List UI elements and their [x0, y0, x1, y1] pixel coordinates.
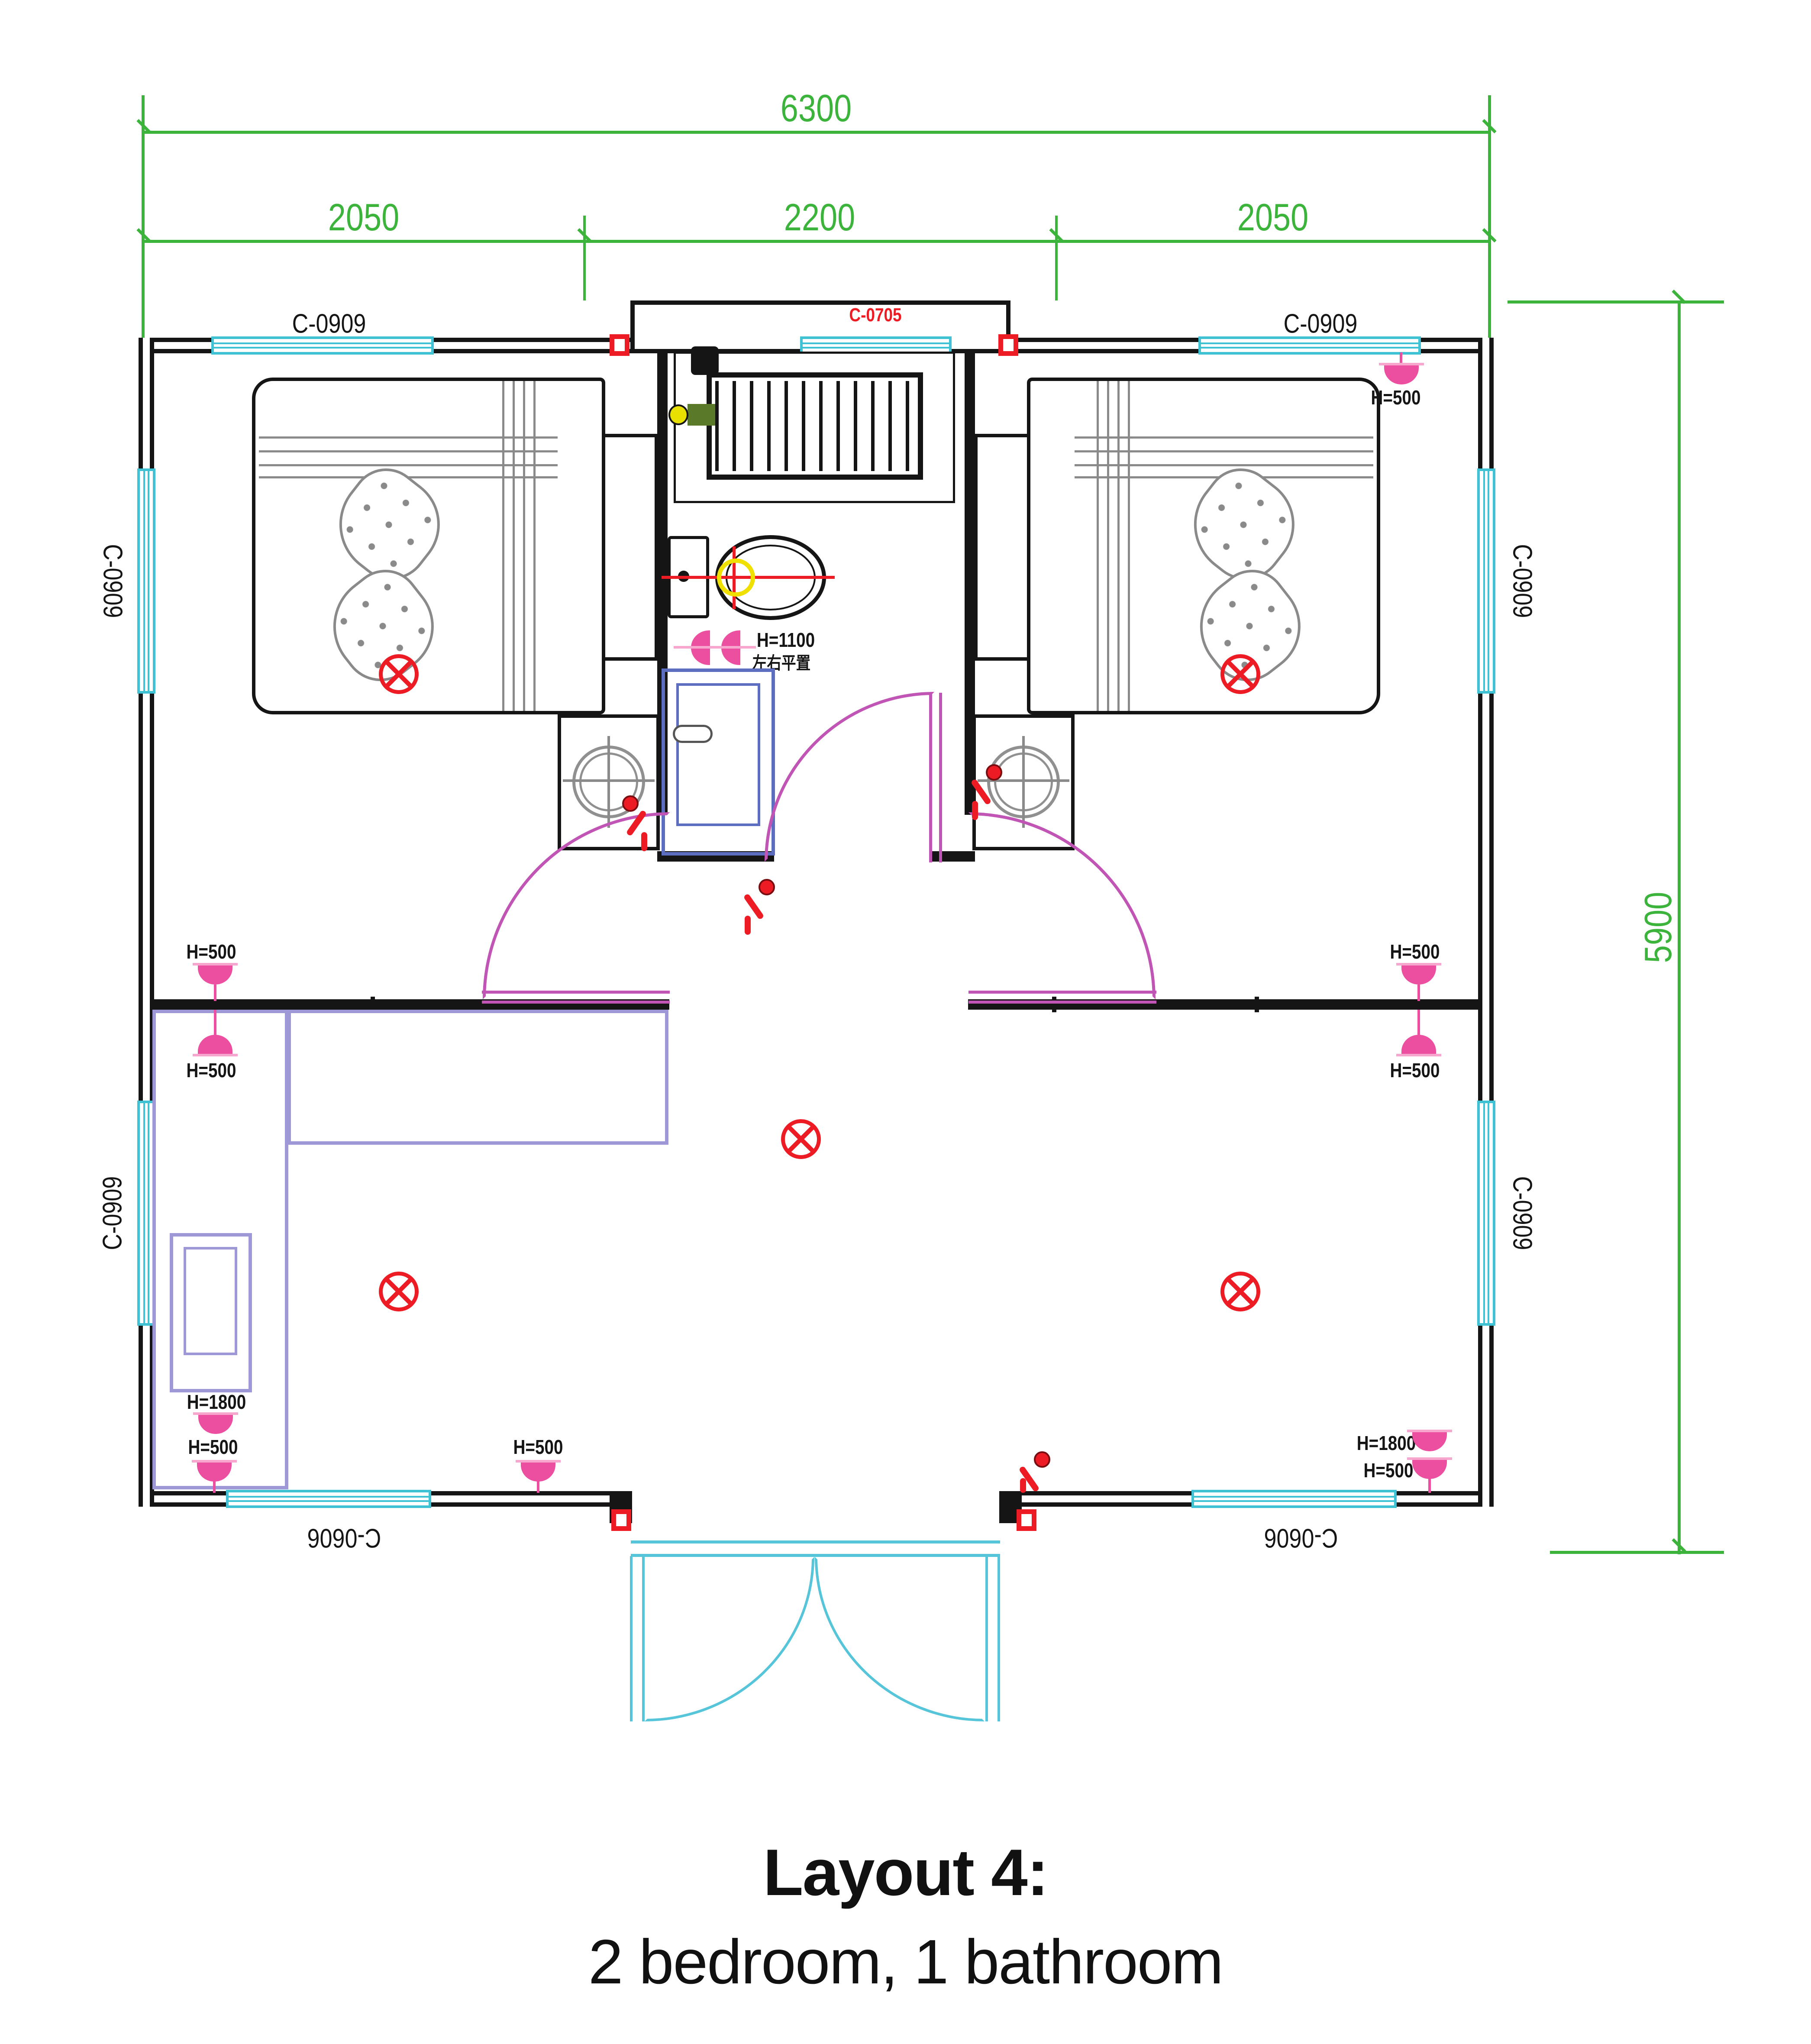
wall-lamp-stem	[1417, 985, 1420, 1001]
toilet-target-ring	[717, 559, 755, 597]
entry-door-leaf-left	[630, 1556, 645, 1721]
lamp-height-label: H=500	[187, 940, 236, 963]
shower-grate	[707, 372, 923, 480]
window-label-left-lower: C-0909	[97, 1176, 128, 1250]
dim-ext-mid2	[1055, 216, 1058, 300]
wall-lamp-bar	[674, 646, 756, 649]
window-left-upper	[137, 468, 155, 694]
ceiling-light-icon	[1220, 1272, 1260, 1311]
entry-door-arc-right	[815, 1557, 985, 1721]
wall-lamp-icon	[1384, 365, 1419, 384]
outlet-icon	[998, 334, 1018, 356]
bed-right-cabinet	[974, 434, 1030, 661]
shower-drain-box	[691, 346, 719, 375]
ceiling-light-icon	[379, 654, 419, 694]
switch-arm	[972, 801, 978, 820]
door-arc-bedroom-right	[968, 812, 1156, 999]
wall-lamp-stem	[213, 1481, 216, 1493]
wall-lamp-icon	[1401, 965, 1436, 985]
dim-segment-2: 2200	[784, 195, 855, 239]
bed-right-headboard-line	[1117, 381, 1120, 711]
window-bottom-left	[226, 1490, 431, 1508]
outlet-icon	[611, 1509, 631, 1531]
bed-right-headboard-line	[1128, 381, 1130, 711]
outlet-icon	[610, 334, 629, 356]
ceiling-light-icon	[1220, 654, 1260, 694]
dim-segment-1: 2050	[328, 195, 399, 239]
nightstand-right-cross-v	[1022, 736, 1025, 828]
page-subtitle: 2 bedroom, 1 bathroom	[0, 1926, 1811, 1998]
wall-lamp-bar	[193, 1054, 238, 1056]
dim-overall-height: 5900	[1636, 892, 1680, 963]
wall-lamp-icon	[1412, 1432, 1447, 1451]
vanity-inner	[676, 683, 760, 826]
lamp-height-label: H=500	[187, 1059, 236, 1082]
switch-icon	[986, 764, 1002, 781]
bed-left-headboard-line	[502, 381, 504, 711]
dim-line-total	[143, 131, 1489, 134]
switch-arm	[745, 916, 751, 935]
switch-arm	[641, 832, 647, 851]
window-label-bathroom: C-0705	[849, 304, 901, 326]
wall-lamp-stem	[1428, 1478, 1431, 1493]
ceiling-light-icon	[781, 1119, 821, 1159]
switch-arm	[1020, 1478, 1026, 1493]
bathroom-lamp-height-label: H=1100	[757, 628, 815, 652]
wall-lamp-icon	[198, 965, 232, 985]
window-label-top-left: C-0909	[292, 309, 366, 339]
bed-left-headboard-line	[533, 381, 536, 711]
switch-icon	[1034, 1451, 1050, 1468]
lamp-height-label: H=1800	[187, 1390, 246, 1414]
window-label-right-upper: C-0909	[1507, 544, 1538, 618]
bed-left-headboard-line	[513, 381, 515, 711]
dim-segment-3: 2050	[1237, 195, 1308, 239]
wall-lamp-bar	[1396, 1054, 1441, 1056]
dim-total-width: 6300	[781, 86, 852, 130]
wall-lamp-stem	[214, 1010, 216, 1035]
ceiling-light-icon	[379, 1272, 419, 1311]
wall-lamp-stem	[214, 985, 216, 1001]
dim-line-segments	[143, 240, 1489, 243]
lamp-height-label: H=500	[188, 1435, 238, 1459]
bed-right-headboard-line	[1107, 381, 1109, 711]
lamp-height-label: H=500	[1364, 1459, 1414, 1482]
window-right-lower	[1477, 1101, 1495, 1326]
fridge-inner	[184, 1247, 237, 1355]
entry-door-arc-left	[645, 1557, 814, 1721]
kitchen-counter	[287, 1010, 668, 1145]
dim-ext-top-right	[1508, 300, 1724, 304]
window-label-bottom-right: C-0606	[1264, 1523, 1338, 1553]
vanity-faucet	[673, 725, 713, 743]
wall-lamp-stem	[537, 1481, 539, 1493]
lamp-height-label: H=1800	[1357, 1431, 1416, 1455]
door-leaf-bedroom-right	[968, 991, 1156, 1004]
wall-lamp-stem	[1417, 1010, 1420, 1035]
lamp-height-label: H=500	[1390, 940, 1440, 963]
page-title: Layout 4:	[0, 1835, 1811, 1911]
switch-icon	[759, 879, 775, 895]
lamp-height-label: H=500	[1390, 1059, 1440, 1082]
shower-valve	[688, 404, 715, 426]
door-leaf-bedroom-left	[482, 991, 670, 1004]
wall-joint-tick	[1255, 997, 1259, 1012]
door-leaf-bathroom	[929, 693, 942, 862]
wall-lamp-icon	[1401, 1035, 1436, 1054]
shower-valve-knob	[668, 404, 688, 425]
floor-plan-page: 6300 2050 2200 2050 5900 C-0909 C-0909 C…	[0, 0, 1811, 2044]
wall-lamp-stem	[1400, 352, 1402, 364]
bed-left-cabinet	[602, 434, 658, 661]
lamp-height-label: H=500	[1371, 386, 1421, 409]
switch-icon	[622, 795, 639, 812]
wall-lamp-icon	[521, 1463, 555, 1482]
entry-door-frame	[631, 1540, 1000, 1557]
dim-ext-mid1	[583, 216, 586, 300]
window-bottom-right	[1191, 1490, 1397, 1508]
bed-left-headboard-line	[523, 381, 525, 711]
lamp-height-label: H=500	[513, 1435, 563, 1459]
window-label-bottom-left: C-0606	[307, 1523, 381, 1553]
bed-right-headboard-line	[1097, 381, 1099, 711]
window-label-top-right: C-0909	[1284, 309, 1358, 339]
wall-lamp-icon	[1412, 1460, 1447, 1479]
outlet-icon	[1017, 1509, 1036, 1531]
window-label-left-upper: C-0909	[97, 544, 128, 618]
nightstand-left-cross-v	[607, 736, 610, 828]
entry-door-leaf-right	[985, 1556, 1000, 1721]
dim-ext-bottom-right	[1550, 1551, 1724, 1554]
door-arc-bathroom	[765, 692, 934, 862]
window-label-right-lower: C-0909	[1507, 1176, 1538, 1250]
window-right-upper	[1477, 468, 1495, 694]
